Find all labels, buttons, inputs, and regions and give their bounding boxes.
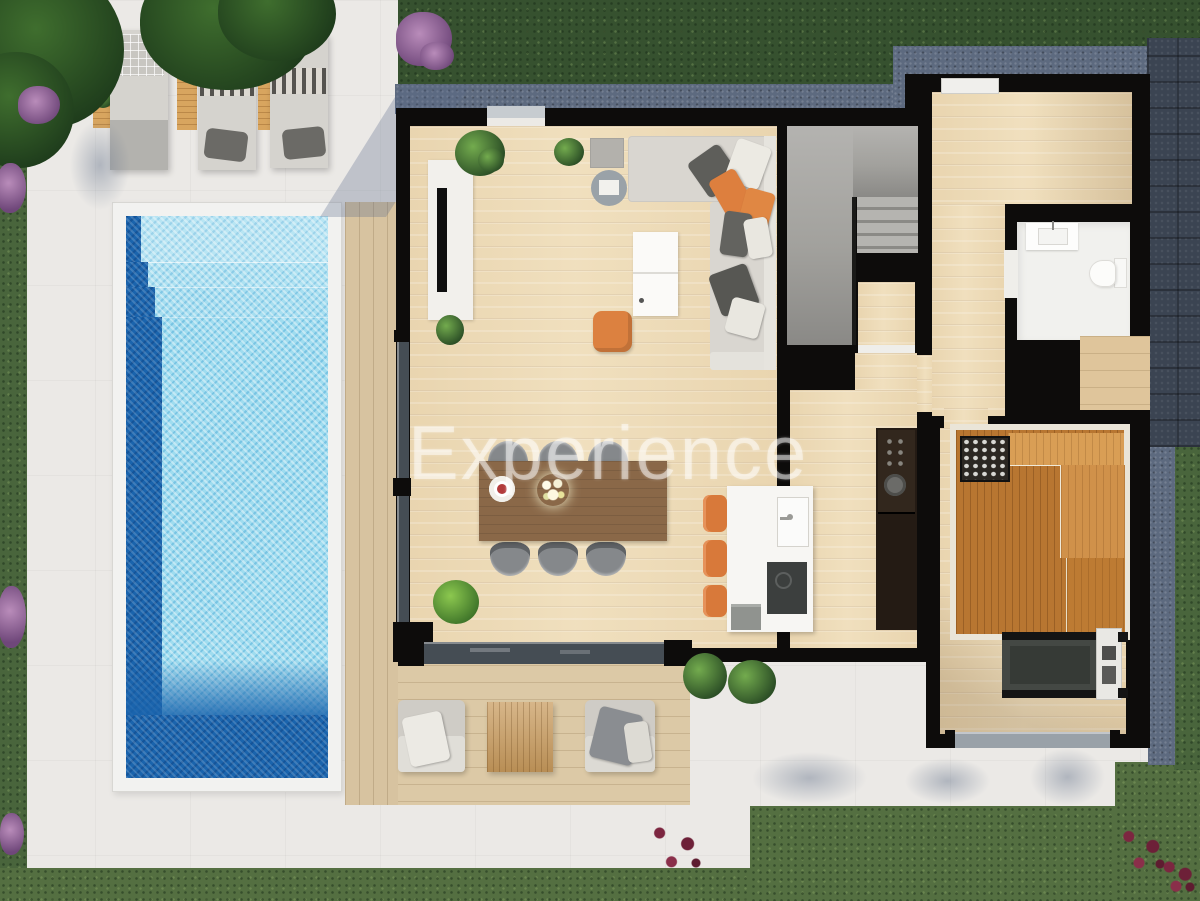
fitness-window-jamb-left [945, 730, 955, 748]
treadmill-screen-2 [1102, 666, 1116, 684]
closet-floor [858, 282, 915, 345]
sliding-door-glint-2 [560, 650, 590, 654]
plant-small-below-sideboard [436, 315, 464, 345]
terrace-coffee-table [487, 702, 553, 772]
treadmill-rail-bottom [1002, 690, 1098, 698]
sideboard [428, 160, 473, 320]
sauna-bench-top [1008, 433, 1124, 466]
pool-shadow-step3 [126, 287, 155, 317]
sliding-door-south [398, 642, 692, 664]
stairs-treads [857, 197, 918, 253]
treadmill-screen-1 [1102, 646, 1116, 660]
coffee-table-divider [633, 272, 678, 274]
side-deck-strip [345, 202, 399, 805]
pool-shadow-step2 [126, 262, 148, 287]
sauna-bench-corner [1066, 558, 1125, 634]
bar-stool-1 [703, 495, 727, 532]
counter-dots [884, 436, 908, 470]
sliding-door-glint-1 [470, 648, 510, 652]
front-door [941, 78, 999, 94]
pool-step-1 [140, 216, 328, 263]
plant-bright-dining [433, 580, 479, 624]
closet-threshold [858, 345, 915, 353]
vanity-basin [1038, 228, 1068, 245]
floor-plan-render: Experience [0, 0, 1200, 901]
coffee-table [633, 232, 678, 316]
island-sink [777, 497, 809, 547]
lounger-shadow [70, 120, 130, 210]
vanity-faucet [1052, 221, 1054, 230]
cooktop-burner-1 [775, 572, 792, 589]
counter-sink-circle [884, 474, 906, 496]
stairs-landing [853, 126, 918, 197]
pool-deep-end [126, 715, 328, 778]
sauna-bench-right [1060, 465, 1125, 558]
watermark: Experience [408, 410, 808, 497]
stairs-upper-flight [787, 126, 853, 345]
corridor-floor [932, 204, 1005, 416]
entry-hall-shading [932, 92, 1132, 204]
red-flowers-1 [640, 815, 710, 875]
plant-shadow-2 [905, 758, 990, 804]
window-top-sill [487, 118, 545, 126]
pool-shadow-step1 [126, 216, 141, 262]
treadmill-nub-2 [1118, 688, 1128, 698]
fitness-window-jamb-right [1110, 730, 1120, 748]
terrace-bush-1 [683, 653, 727, 699]
island-faucet-dot [787, 514, 793, 520]
bathroom-door-gap [1004, 250, 1018, 298]
driveway-paving [1147, 38, 1200, 447]
plant-shadow-1 [752, 752, 867, 804]
sauna-heater [960, 436, 1010, 482]
sliding-door-jamb-left [398, 640, 424, 666]
side-table-square [590, 138, 624, 168]
gravel-right-strip [1148, 445, 1175, 765]
treadmill-rail-top [1002, 632, 1098, 640]
plant-large-2 [478, 148, 504, 172]
side-table-tray [599, 180, 619, 195]
coffee-table-knob [639, 298, 644, 303]
kitchen-bin [731, 604, 761, 630]
ottoman-orange [593, 311, 632, 352]
pool-depth-transition [126, 660, 328, 716]
toilet-bowl [1089, 260, 1116, 287]
fitness-window-glass [945, 732, 1120, 748]
plant-beside-sofa [554, 138, 584, 166]
bar-stool-2 [703, 540, 727, 577]
side-entrance-deck [1080, 336, 1150, 410]
treadmill-belt-center [1010, 646, 1090, 684]
red-flowers-3 [1158, 855, 1198, 895]
bar-stool-3 [703, 585, 727, 617]
grass-right-column [1174, 445, 1200, 770]
stairs-stringer [852, 197, 856, 345]
lounger-3-bag [282, 126, 327, 160]
terrace-bush-2 [728, 660, 776, 704]
sideboard-tv [437, 188, 447, 292]
pool-shadow-left-band [126, 317, 162, 717]
pool-step-2 [147, 262, 328, 288]
plant-shadow-3 [1030, 748, 1105, 806]
pool-step-3 [154, 287, 328, 318]
cooktop-burner-2 [789, 590, 799, 600]
glass-wall-post-top [394, 330, 410, 342]
treadmill-nub-1 [1118, 632, 1128, 642]
lounger-2-bag [203, 128, 248, 163]
